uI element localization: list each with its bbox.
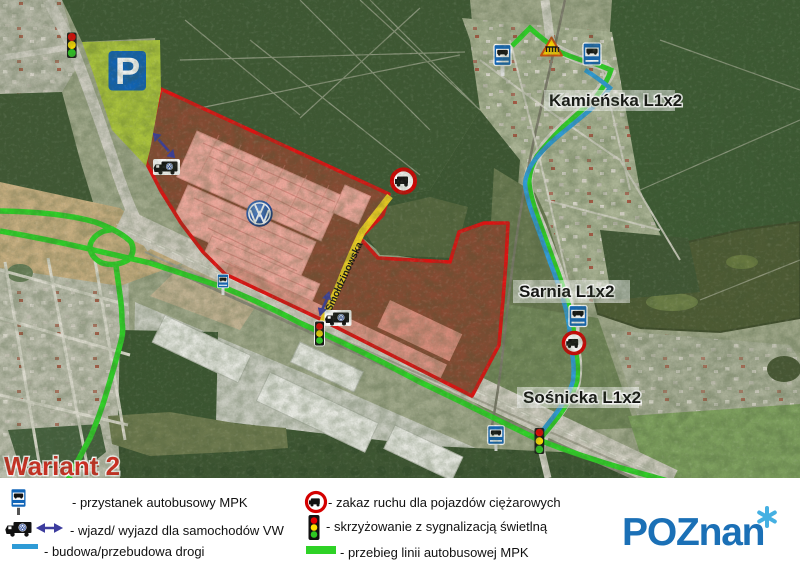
svg-text:- zakaz ruchu dla pojazdów cię: - zakaz ruchu dla pojazdów ciężarowych	[328, 495, 561, 510]
svg-text:- przebieg linii autobusowej M: - przebieg linii autobusowej MPK	[340, 545, 529, 560]
svg-text:- skrzyżowanie z sygnalizacją: - skrzyżowanie z sygnalizacją świetlną	[326, 519, 548, 534]
svg-text:- budowa/przebudowa drogi: - budowa/przebudowa drogi	[44, 544, 205, 559]
svg-text:- wjazd/ wyjazd dla samochodów: - wjazd/ wyjazd dla samochodów VW	[70, 523, 285, 538]
svg-text:- przystanek autobusowy MPK: - przystanek autobusowy MPK	[72, 495, 248, 510]
svg-text:POZnan: POZnan	[622, 511, 764, 554]
